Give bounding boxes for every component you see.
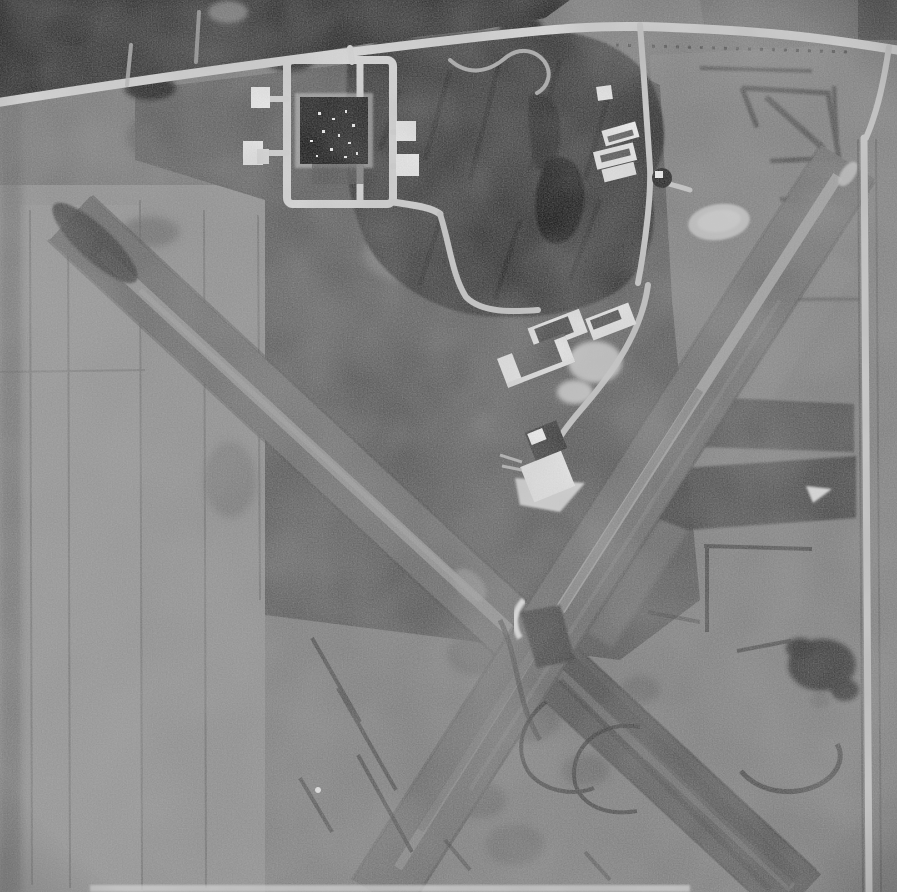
vignette	[0, 0, 897, 892]
aerial-photo-canvas: Black-and-white vintage aerial photograp…	[0, 0, 897, 892]
aerial-photo: Black-and-white vintage aerial photograp…	[0, 0, 897, 892]
